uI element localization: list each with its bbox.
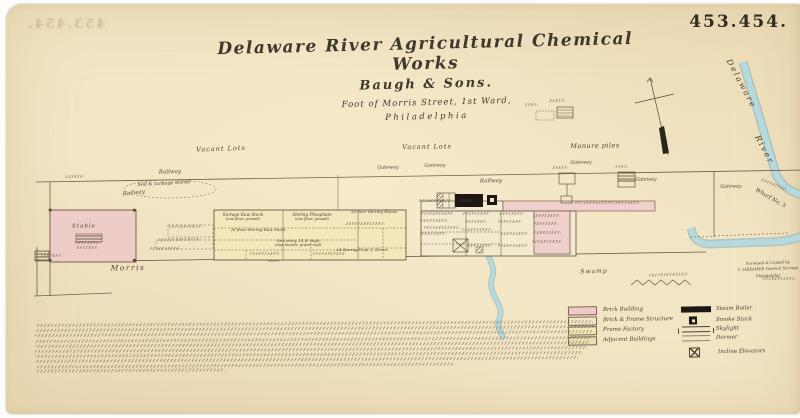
illegible-annotation xyxy=(532,214,560,217)
illegible-annotation xyxy=(534,222,558,225)
map-label: 2d floor Storing House xyxy=(351,210,397,214)
map-label: Morris xyxy=(111,264,146,272)
legend-row: Brick Building xyxy=(568,305,643,315)
fence-zigzag xyxy=(631,280,691,285)
illegible-annotation xyxy=(345,222,385,225)
illegible-annotation xyxy=(462,212,490,215)
map-label: Vacant Lots xyxy=(402,143,452,150)
illegible-annotation xyxy=(498,220,522,223)
illegible-annotation xyxy=(312,252,346,255)
illegible-annotation xyxy=(498,244,528,247)
legend-label: Smoke Stack xyxy=(716,316,752,323)
illegible-annotation xyxy=(498,212,524,215)
legend-row: Skylight xyxy=(681,325,739,332)
illegible-annotation xyxy=(532,240,562,243)
map-label: Stable xyxy=(72,224,96,230)
smoke-stack-icon xyxy=(689,316,697,324)
map-label: (clap boards, gravel roof) xyxy=(275,244,321,248)
legend-label: Incline Elevators xyxy=(718,348,765,355)
legend-label: Skylight xyxy=(716,325,739,331)
illegible-annotation xyxy=(458,199,474,202)
steam-boiler-icon xyxy=(681,306,711,313)
illegible-annotation xyxy=(524,103,538,106)
map-label: 2d floor Storing Raw Stock xyxy=(230,228,285,232)
map-label: Gateway xyxy=(377,166,398,171)
surveyor-imprint: Surveyed & Copied byC. HEXAMER General S… xyxy=(732,259,800,280)
illegible-annotation xyxy=(168,225,202,229)
illegible-annotation xyxy=(549,99,565,103)
illegible-annotation xyxy=(74,241,100,244)
legend-label: Adjacent Buildings xyxy=(603,336,656,343)
illegible-annotation xyxy=(420,232,446,235)
illegible-annotation xyxy=(610,201,640,204)
legend-label: Brick Building xyxy=(603,307,643,314)
illegible-annotation xyxy=(424,226,460,229)
illegible-annotation xyxy=(150,247,180,251)
wharf-dotted-line xyxy=(690,233,788,237)
illegible-annotation xyxy=(533,231,561,234)
map-label: Vacant Lots xyxy=(196,145,246,153)
illegible-annotation xyxy=(552,166,568,170)
map-sheet-paper: 453.454. 453.454. Delaware River Agricul… xyxy=(6,4,800,414)
illegible-annotation xyxy=(76,246,98,249)
legend-label: Brick & Frame Structure xyxy=(603,316,673,323)
illegible-annotation xyxy=(500,232,528,235)
map-label: Gateway xyxy=(570,161,591,166)
map-label: Gateway xyxy=(635,178,656,183)
map-label: Gateway xyxy=(720,185,741,190)
incline-icon xyxy=(689,347,700,357)
legend-label: Frame Factory xyxy=(603,327,644,334)
legend-label: Dormer xyxy=(716,335,738,341)
scanned-survey-map: 453.454. 453.454. Delaware River Agricul… xyxy=(0,0,800,418)
illegible-annotation xyxy=(40,254,62,257)
dormer-icon xyxy=(682,335,710,341)
legend-row: Incline Elevators xyxy=(681,346,765,357)
legend-row: Smoke Stack xyxy=(681,315,752,324)
property-lines xyxy=(34,170,800,296)
illegible-annotation xyxy=(462,228,492,231)
map-label: Gateway xyxy=(424,164,445,169)
map-label: Swamp xyxy=(580,269,608,276)
illegible-annotation xyxy=(575,201,611,204)
map-label: Railway xyxy=(159,170,181,176)
legend-row: Dormer xyxy=(681,335,738,342)
map-label: (one floor, ground) xyxy=(295,218,329,222)
legend-label: Steam Boiler xyxy=(716,305,752,312)
illegible-annotation xyxy=(465,220,487,223)
illegible-annotation xyxy=(466,244,492,247)
illegible-annotation xyxy=(420,219,448,222)
illegible-annotation xyxy=(420,212,454,215)
map-label: Manure piles xyxy=(570,142,620,149)
skylight-icon xyxy=(682,326,710,332)
illegible-annotation xyxy=(614,165,628,168)
compass-icon xyxy=(635,78,674,155)
legend-row: Steam Boiler xyxy=(681,305,752,312)
map-label: (one floor, ground) xyxy=(226,218,260,222)
illegible-annotation xyxy=(418,199,452,202)
legend-swatch xyxy=(568,306,597,315)
illegible-annotation xyxy=(250,252,280,255)
railway-line-north xyxy=(36,170,800,182)
title-inset-boxes xyxy=(536,107,573,120)
map-label: Railway xyxy=(480,179,502,185)
